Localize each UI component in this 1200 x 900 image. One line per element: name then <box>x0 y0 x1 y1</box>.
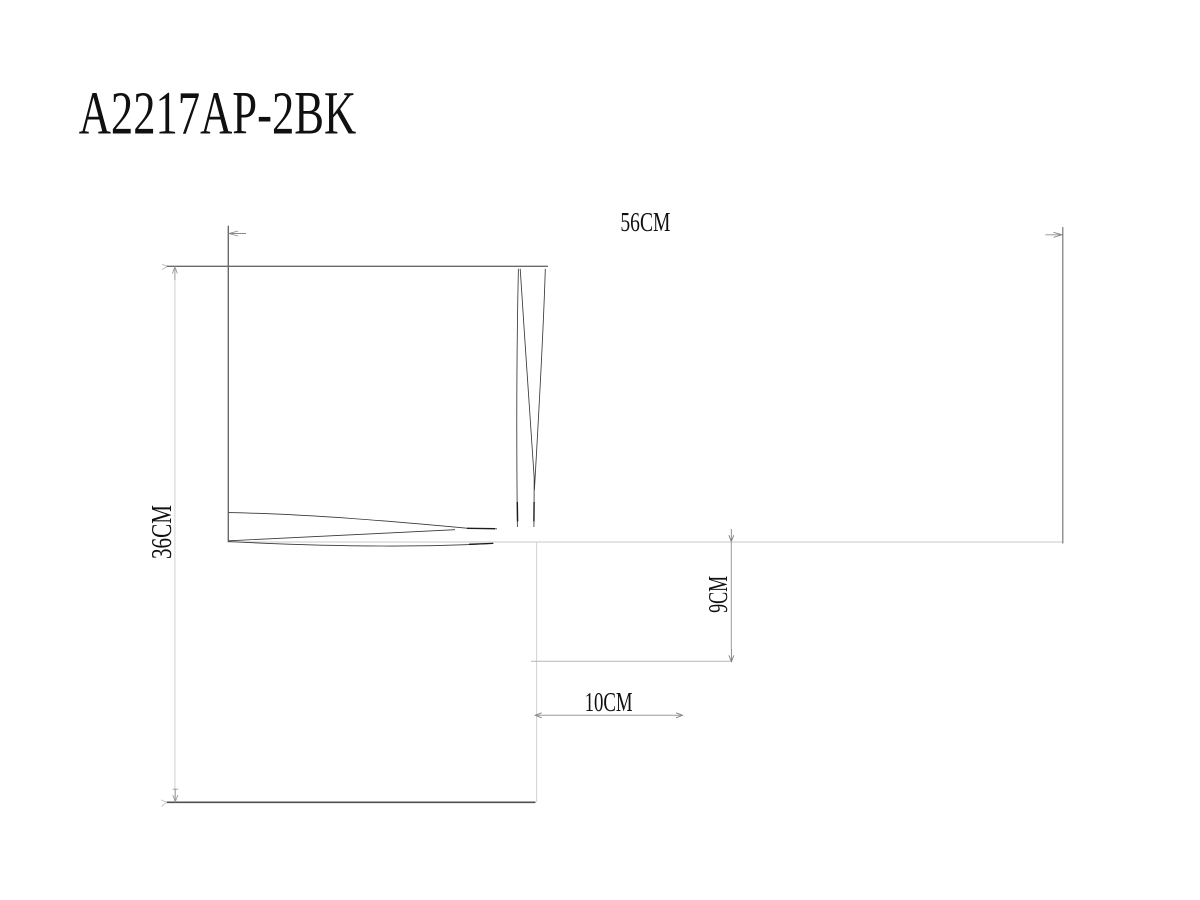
svg-text:36CM: 36CM <box>147 505 178 559</box>
svg-text:9CM: 9CM <box>703 576 733 613</box>
svg-text:10CM: 10CM <box>585 687 633 717</box>
svg-text:56CM: 56CM <box>620 207 670 237</box>
svg-text:A2217AP-2BK: A2217AP-2BK <box>79 80 357 147</box>
